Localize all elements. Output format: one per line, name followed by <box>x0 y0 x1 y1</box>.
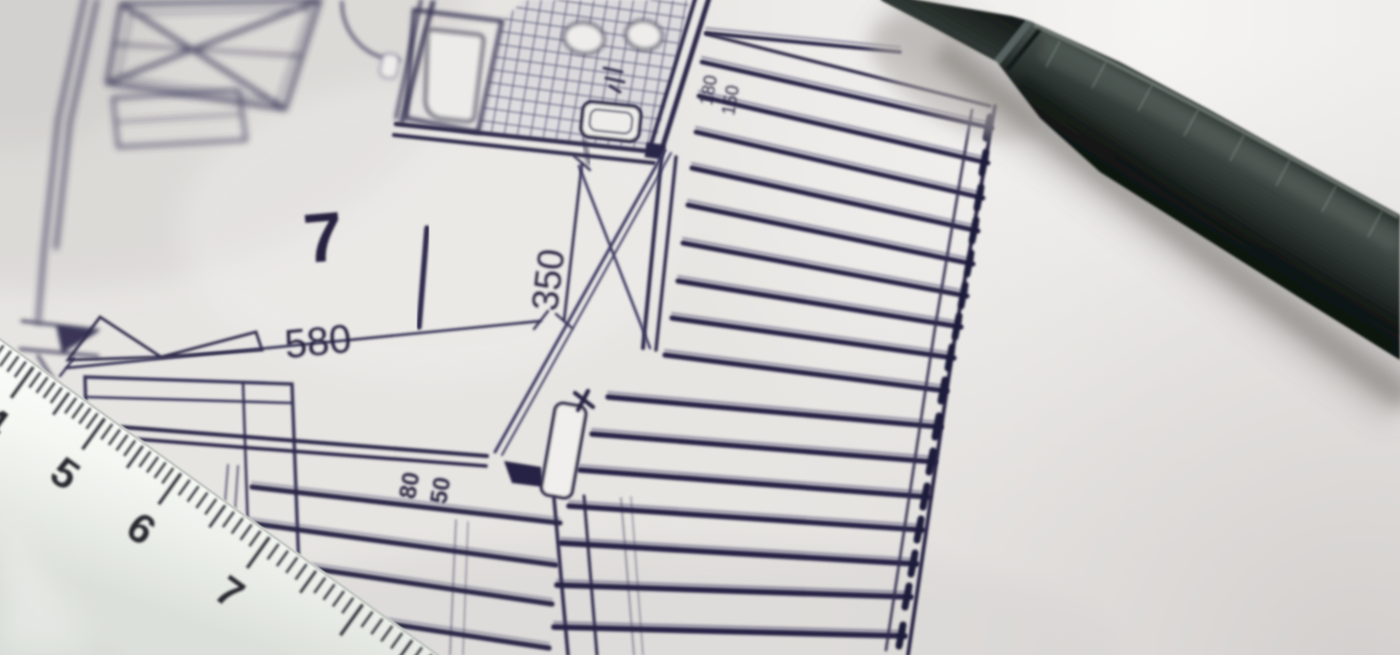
svg-text:580: 580 <box>283 317 354 367</box>
svg-text:80: 80 <box>394 470 425 501</box>
svg-text:7: 7 <box>300 197 346 278</box>
svg-text:350: 350 <box>524 247 572 313</box>
svg-text:50: 50 <box>425 475 456 506</box>
